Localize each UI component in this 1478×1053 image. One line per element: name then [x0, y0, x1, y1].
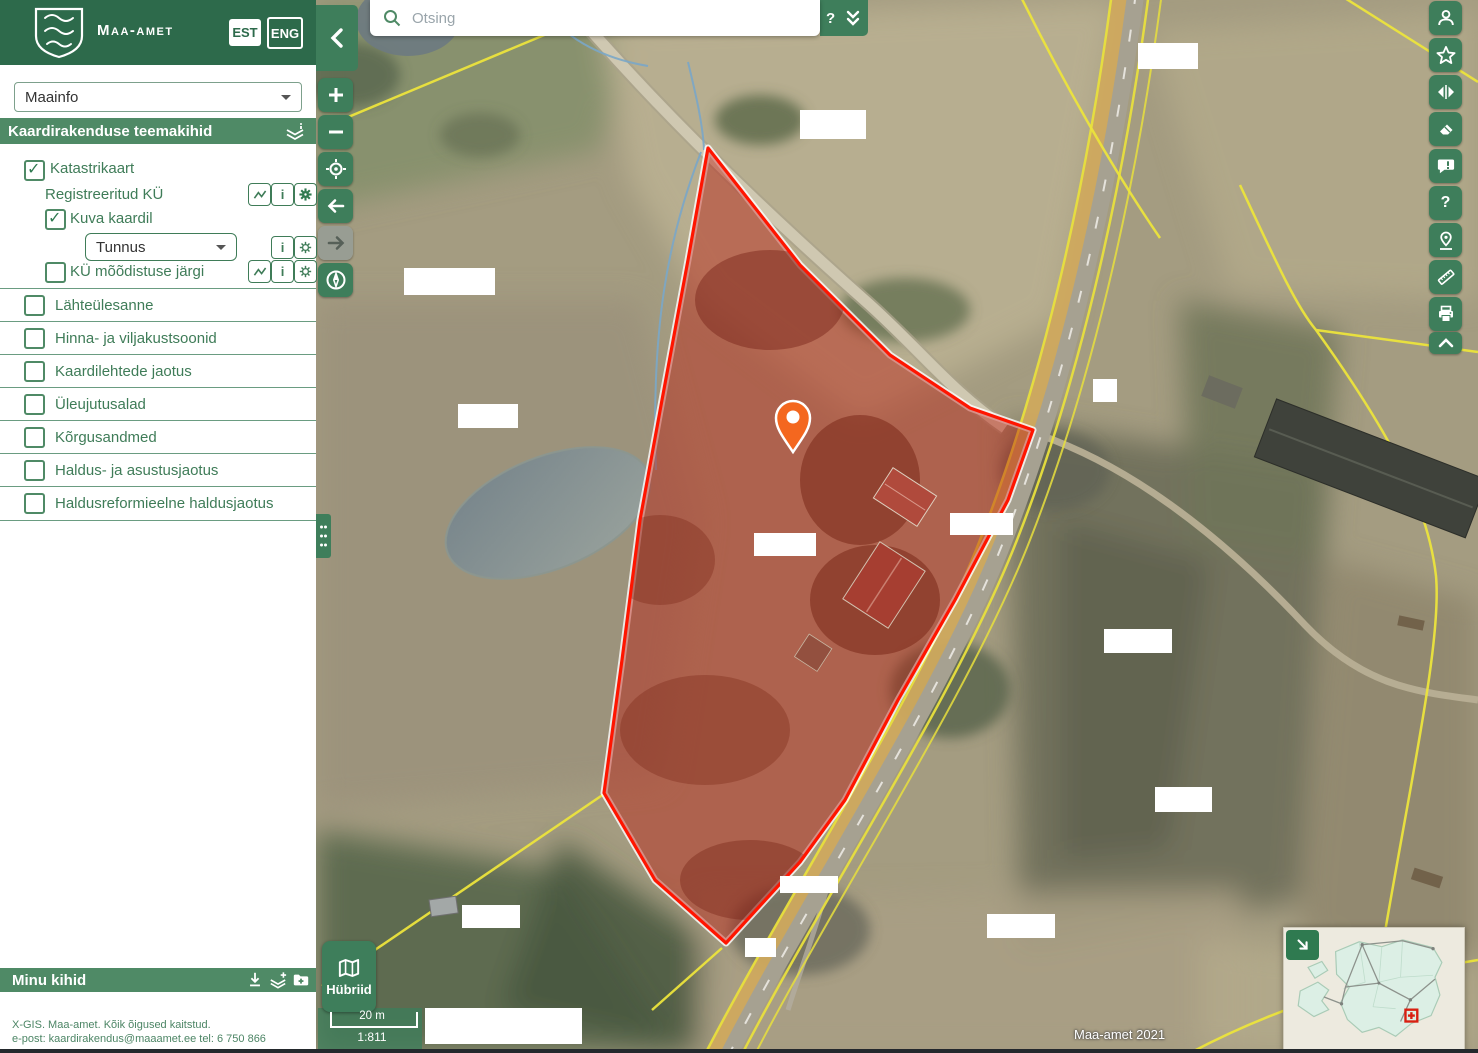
search-side-buttons: ?	[820, 0, 868, 36]
katastrikaart-checkbox[interactable]	[24, 160, 45, 181]
katastrikaart-label: Katastrikaart	[50, 160, 134, 177]
sidebar-header: Maa-amet EST ENG	[0, 0, 316, 65]
locate-button[interactable]	[318, 152, 353, 186]
history-back-button[interactable]	[318, 189, 353, 223]
footer-copyright: X-GIS. Maa-amet. Kõik õigused kaitstud.	[12, 1019, 211, 1031]
add-layer-icon[interactable]	[269, 971, 287, 989]
grip-dots-icon	[319, 523, 328, 549]
tunnus-select[interactable]: Tunnus	[85, 233, 237, 261]
ruler-icon	[1435, 266, 1457, 288]
profile-button[interactable]	[1429, 1, 1462, 35]
layer-row[interactable]: Hinna- ja viljakustsoonid	[0, 321, 316, 355]
swipe-compare-icon	[1436, 83, 1456, 101]
layer-checkbox[interactable]	[24, 394, 45, 415]
info-button[interactable]: i	[271, 260, 294, 283]
download-icon[interactable]	[246, 971, 264, 989]
theme-layers-section-bar[interactable]: Kaardirakenduse teemakihid	[0, 118, 316, 144]
info-icon: i	[281, 264, 285, 279]
collapse-toolbar-button[interactable]	[1429, 332, 1462, 354]
compass-icon	[324, 268, 348, 292]
overview-collapse-button[interactable]	[1286, 930, 1319, 960]
erase-button[interactable]	[1429, 112, 1462, 146]
settings-active-button[interactable]	[294, 183, 317, 206]
printer-icon	[1436, 304, 1456, 324]
aerial-map[interactable]	[316, 0, 1478, 1053]
info-button[interactable]: i	[271, 236, 294, 259]
layer-checkbox[interactable]	[24, 361, 45, 382]
legend-button[interactable]	[248, 260, 271, 283]
kuva-kaardil-checkbox[interactable]	[45, 209, 66, 230]
compare-layers-button[interactable]	[1429, 75, 1462, 109]
xgis-app: Maa-amet EST ENG Maainfo Kaardirakenduse…	[0, 0, 1478, 1053]
my-layers-title: Minu kihid	[12, 972, 86, 989]
coat-of-arms-logo	[30, 6, 88, 59]
layer-checkbox[interactable]	[24, 460, 45, 481]
map-attribution: Maa-amet 2021	[1074, 1027, 1165, 1042]
map-pin-icon	[1436, 230, 1456, 251]
ku-moodistuse-label: KÜ mõõdistuse järgi	[70, 263, 204, 280]
sidebar: Maa-amet EST ENG Maainfo Kaardirakenduse…	[0, 0, 316, 1053]
layer-checkbox[interactable]	[24, 295, 45, 316]
layer-row[interactable]: Lähteülesanne	[0, 288, 316, 322]
registreeritud-ku-label: Registreeritud KÜ	[45, 186, 163, 203]
panel-drag-handle[interactable]	[316, 514, 331, 558]
minus-icon	[327, 123, 345, 141]
layer-label: Lähteülesanne	[55, 297, 153, 314]
layer-row[interactable]: Haldus- ja asustusjaotus	[0, 453, 316, 487]
layer-label: Haldusreformieelne haldusjaotus	[55, 495, 273, 512]
layer-row[interactable]: Kaardilehtede jaotus	[0, 354, 316, 388]
layers-info-icon[interactable]	[284, 121, 306, 141]
history-forward-button[interactable]	[318, 226, 353, 260]
settings-button[interactable]	[294, 236, 317, 259]
settings-button[interactable]	[294, 260, 317, 283]
print-button[interactable]	[1429, 297, 1462, 331]
language-est-button[interactable]: EST	[229, 19, 261, 46]
arrow-right-icon	[326, 235, 346, 251]
gear-filled-icon	[297, 186, 314, 203]
small-shed	[429, 896, 458, 917]
zoom-out-button[interactable]	[318, 115, 353, 149]
chevron-down-icon	[281, 95, 291, 100]
application-select[interactable]: Maainfo	[14, 82, 302, 112]
layer-row[interactable]: Haldusreformieelne haldusjaotus	[0, 486, 316, 521]
help-button[interactable]: ?	[1429, 186, 1462, 220]
crosshair-icon	[325, 158, 347, 180]
search-help-button[interactable]: ?	[826, 10, 835, 27]
help-label: ?	[1441, 194, 1451, 212]
layer-checkbox[interactable]	[24, 427, 45, 448]
scale-distance: 20 m	[330, 1010, 414, 1022]
star-icon	[1435, 45, 1457, 66]
arrow-left-icon	[326, 198, 346, 214]
ku-moodistuse-checkbox[interactable]	[45, 262, 66, 283]
search-icon	[382, 8, 402, 28]
info-icon: i	[281, 187, 285, 202]
language-eng-button[interactable]: ENG	[267, 17, 303, 49]
comment-exclamation-icon	[1436, 156, 1456, 176]
feedback-button[interactable]	[1429, 149, 1462, 183]
basemap-label: Hübriid	[326, 982, 372, 997]
eraser-icon	[1436, 119, 1456, 139]
window-bottom-edge	[0, 1049, 1478, 1053]
scale-ratio: 1:811	[330, 1030, 414, 1044]
chevron-down-icon	[216, 245, 226, 250]
tunnus-select-value: Tunnus	[96, 239, 145, 256]
layer-checkbox[interactable]	[24, 493, 45, 514]
application-select-value: Maainfo	[25, 89, 78, 106]
search-bar[interactable]	[370, 0, 820, 36]
layer-checkbox[interactable]	[24, 328, 45, 349]
legend-button[interactable]	[248, 183, 271, 206]
gear-outline-icon	[297, 239, 314, 256]
search-input[interactable]	[410, 9, 794, 28]
info-icon: i	[281, 240, 285, 255]
zoom-in-button[interactable]	[318, 78, 353, 112]
folded-map-icon	[337, 957, 361, 979]
chevron-left-icon	[328, 26, 346, 50]
gear-outline-icon	[297, 263, 314, 280]
user-icon	[1436, 8, 1456, 28]
layer-label: Üleujutusalad	[55, 396, 146, 413]
sidebar-collapse-button[interactable]	[316, 5, 358, 71]
my-layers-bar[interactable]: Minu kihid	[0, 968, 316, 992]
section-title: Kaardirakenduse teemakihid	[8, 123, 212, 140]
plus-icon	[327, 86, 345, 104]
basemap-switch-button[interactable]: Hübriid	[322, 941, 376, 1012]
layer-label: Haldus- ja asustusjaotus	[55, 462, 218, 479]
layer-label: Kõrgusandmed	[55, 429, 157, 446]
arrow-down-right-icon	[1295, 937, 1311, 953]
layer-row[interactable]: Üleujutusalad	[0, 387, 316, 421]
brand-title: Maa-amet	[97, 22, 174, 39]
zigzag-chart-icon	[252, 187, 268, 203]
add-folder-icon[interactable]	[292, 971, 310, 989]
footer-contact: e-post: kaardirakendus@maaamet.ee tel: 6…	[12, 1033, 266, 1045]
zigzag-chart-icon	[252, 264, 268, 280]
kuva-kaardil-label: Kuva kaardil	[70, 210, 153, 227]
add-marker-button[interactable]	[1429, 223, 1462, 257]
layer-label: Kaardilehtede jaotus	[55, 363, 192, 380]
measure-button[interactable]	[1429, 260, 1462, 294]
layer-label: Hinna- ja viljakustsoonid	[55, 330, 217, 347]
chevron-up-icon	[1438, 337, 1454, 349]
layer-row[interactable]: Kõrgusandmed	[0, 420, 316, 454]
info-button[interactable]: i	[271, 183, 294, 206]
double-chevron-down-icon[interactable]	[844, 8, 862, 28]
compass-button[interactable]	[318, 263, 353, 297]
favorites-button[interactable]	[1429, 38, 1462, 72]
